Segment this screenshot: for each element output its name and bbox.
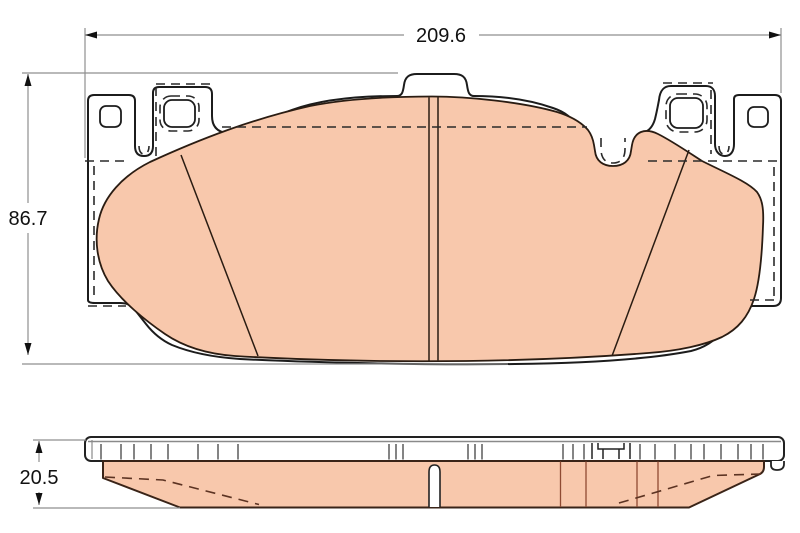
side-backplate-right-lug bbox=[771, 461, 784, 470]
arrowhead-down bbox=[36, 493, 43, 505]
side-profile-view bbox=[85, 437, 784, 508]
arrowhead-up bbox=[36, 441, 43, 453]
brake-pad-technical-drawing: 209.6 86.7 20.5 bbox=[0, 0, 800, 533]
drawing-canvas: 209.6 86.7 20.5 bbox=[0, 0, 800, 533]
arrowhead-down bbox=[25, 343, 32, 355]
dim-thickness-label: 20.5 bbox=[20, 467, 59, 489]
arrowhead-right bbox=[769, 32, 781, 39]
mounting-hole-right-inner bbox=[670, 98, 703, 128]
mounting-hole-left-outer bbox=[100, 106, 121, 127]
arrowhead-left bbox=[85, 32, 97, 39]
mounting-hole-left-inner bbox=[164, 100, 195, 127]
arrowhead-up bbox=[25, 74, 32, 86]
side-backplate bbox=[85, 437, 784, 461]
dim-width-label: 209.6 bbox=[416, 25, 466, 47]
side-groove-slot bbox=[429, 465, 440, 507]
mounting-hole-right-outer bbox=[748, 107, 768, 127]
dim-height-label: 86.7 bbox=[9, 208, 48, 230]
front-view bbox=[85, 74, 781, 364]
